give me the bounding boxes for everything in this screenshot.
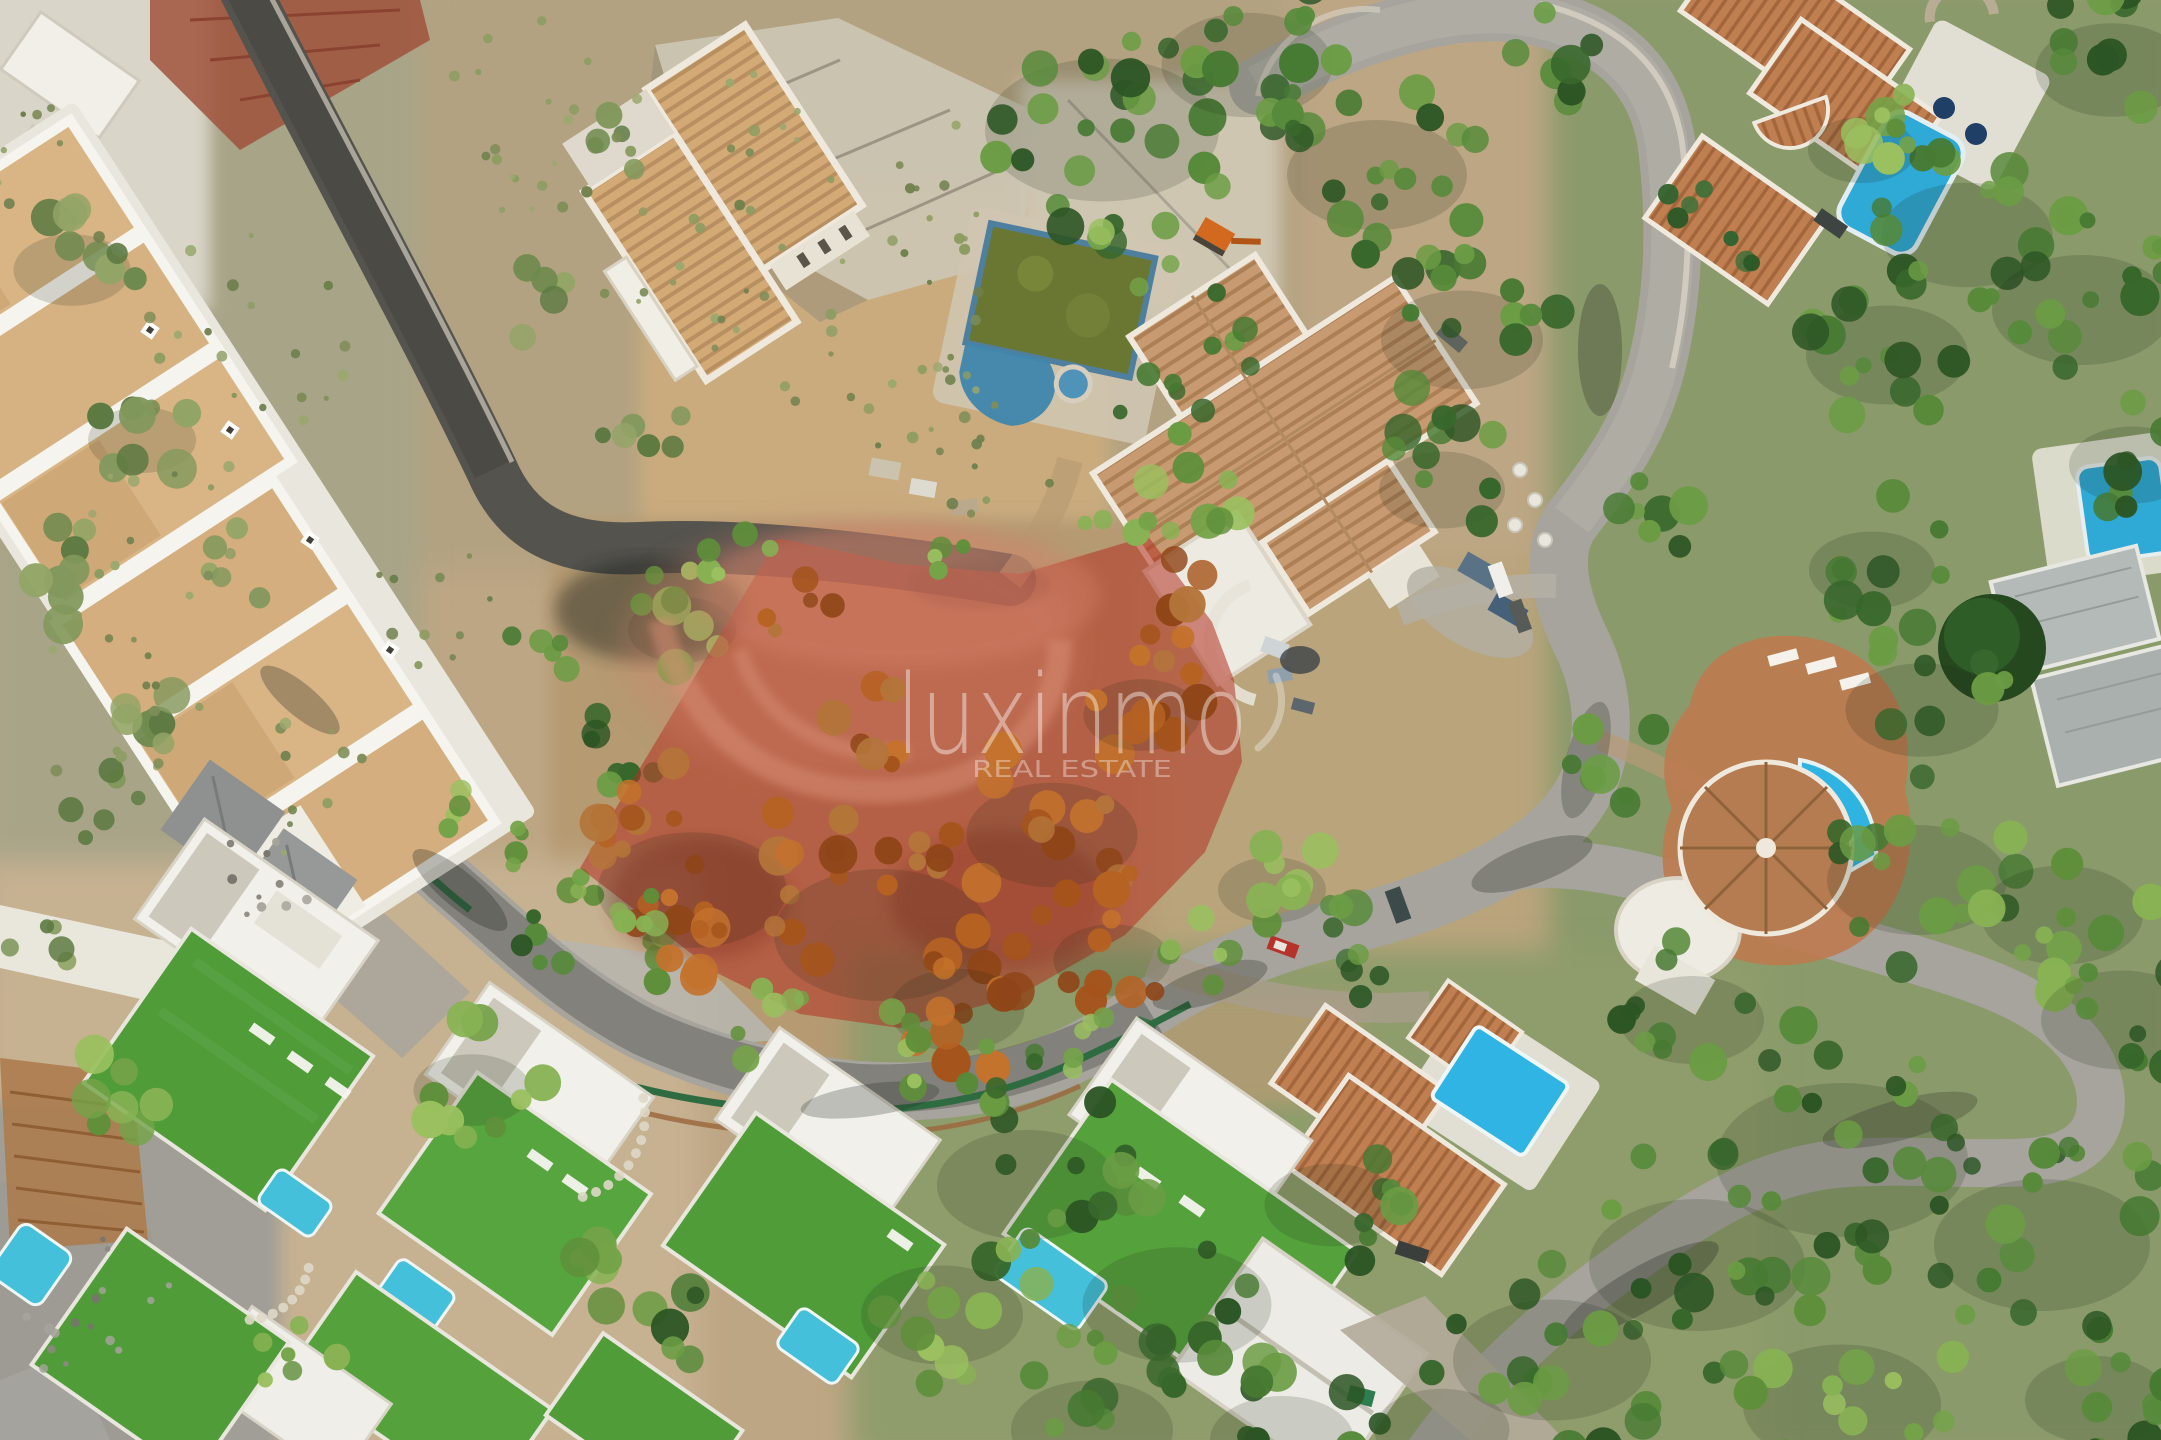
tree-blob [1164,374,1182,392]
tree-blob [1074,1022,1091,1039]
tree-blob [153,732,175,754]
tree-blob [929,427,934,432]
tree-blob [19,563,53,597]
tree-blob [2029,1137,2061,1169]
tree-blob [1544,1322,1568,1346]
tinted-tree-blob [926,997,955,1026]
tinted-tree-blob [803,593,818,608]
tree-blob [1723,231,1738,246]
tree-blob [661,1336,684,1359]
tree-blob [258,1372,273,1387]
tree-blob [166,1282,172,1288]
tree-blob [43,513,72,542]
tree-blob [1870,214,1902,246]
tree-blob [88,510,96,518]
tree-blob [643,888,659,904]
tree-blob [967,509,975,517]
tree-blob [390,575,399,584]
tree-blob [780,124,787,131]
tree-blob [1930,1196,1949,1215]
tree-blob [1329,1374,1365,1410]
tinted-tree-blob [933,957,955,979]
tree-blob [110,561,119,570]
tree-blob [1354,1213,1373,1232]
tree-blob [340,341,351,352]
tree-blob [965,1292,1002,1329]
tree-blob [49,936,75,962]
tree-blob [1382,437,1406,461]
tree-blob [1078,516,1093,531]
stepping-stone [640,1107,650,1117]
tree-blob [875,442,881,448]
tree-blob [1093,1007,1114,1028]
tree-blob [105,1246,111,1252]
tree-blob [1431,175,1453,197]
tree-blob [584,58,592,66]
tree-blob [203,571,213,581]
tree-blob [718,316,726,324]
tree-blob [636,299,641,304]
tree-blob [2082,1392,2112,1422]
tree-blob [676,262,685,271]
tree-blob [411,1101,448,1138]
tree-blob [1873,852,1891,870]
tree-blob [144,312,156,324]
tree-blob [927,280,932,285]
tree-blob [1197,1340,1233,1376]
tree-blob [1110,118,1135,143]
tree-blob [249,587,270,608]
tree-blob [1910,764,1935,789]
tree-blob [1509,1278,1540,1309]
stepping-stone [578,1192,588,1202]
tree-blob [1849,917,1869,937]
tree-blob [44,1324,55,1335]
tree-blob [281,901,291,911]
tinted-tree-blob [711,922,727,938]
tree-blob [117,444,149,476]
tree-blob [1137,362,1161,386]
tree-blob [128,475,140,487]
tree-blob [1834,1120,1863,1149]
tinted-tree-blob [926,844,954,872]
tree-blob [1241,1365,1274,1398]
tree-blob [2123,1142,2153,1172]
tree-blob [1631,1144,1657,1170]
tree-blob [1162,255,1180,273]
tree-blob [145,652,152,659]
tree-blob [2035,926,2052,943]
tree-blob [53,197,88,232]
tree-blob [485,1117,506,1138]
tree-blob [1160,940,1181,961]
tree-blob [1720,1350,1749,1379]
tree-blob [204,328,212,336]
tree-blob [1349,985,1372,1008]
tree-blob [1601,1199,1621,1219]
tree-blob [1932,566,1950,584]
tree-blob [552,635,569,652]
tree-blob [1454,244,1474,264]
tree-blob [1893,84,1915,106]
tree-blob [612,423,637,448]
tree-blob [933,362,943,372]
tree-blob [1995,671,2013,689]
tree-blob [1839,1349,1875,1385]
tree-blob [47,104,55,112]
tree-blob [689,214,700,225]
tree-blob [624,159,645,180]
tree-blob [1758,1049,1781,1072]
tree-blob [1500,278,1524,302]
tree-blob [1885,1372,1902,1389]
tree-blob [1415,470,1433,488]
tree-blob [1215,1298,1242,1325]
tree-blob [546,99,552,105]
tree-blob [537,16,546,25]
tree-blob [918,365,927,374]
tree-blob [186,592,194,600]
tree-blob [828,351,833,356]
tree-blob [1581,755,1620,794]
tree-blob [1078,49,1104,75]
tree-blob [1145,124,1180,159]
tinted-tree-blob [1169,586,1206,623]
tree-blob [203,535,227,559]
tree-blob [986,1077,1008,1099]
tree-blob [1668,535,1691,558]
tree-blob [1419,1360,1444,1385]
tree-blob [227,874,237,884]
tree-blob [105,634,113,642]
tree-blob [1045,479,1054,488]
tree-blob [929,561,948,580]
tinted-tree-blob [792,566,818,592]
tree-blob [1822,1375,1843,1396]
tree-blob [1863,1256,1892,1285]
tree-blob [57,140,63,146]
tree-blob [982,496,990,504]
tree-blob [695,223,705,233]
tree-blob [2120,277,2159,316]
tree-blob [1855,1219,1889,1253]
tree-blob [1876,479,1910,513]
tree-blob [376,572,382,578]
tree-blob [1884,342,1921,379]
tree-blob [600,289,610,299]
tree-blob [211,567,231,587]
tree-blob [2076,997,2098,1019]
tree-blob [51,765,63,777]
tree-blob [640,288,649,297]
tree-blob [636,915,653,932]
tree-blob [2082,291,2099,308]
tree-blob [324,1344,351,1371]
tree-blob [1232,317,1258,343]
tree-blob [639,207,648,216]
tree-blob [956,1072,978,1094]
tree-blob [744,288,749,293]
tree-blob [131,637,137,643]
tree-blob [357,754,367,764]
tree-blob [1930,520,1948,538]
tree-blob [936,448,944,456]
tree-blob [1689,1043,1727,1081]
tree-blob [731,1026,746,1041]
tree-blob [414,661,422,669]
tree-blob [506,857,521,872]
tree-blob [1625,1403,1662,1440]
stepping-stone [591,1187,601,1197]
tree-blob [22,1313,30,1321]
tree-blob [1941,818,1960,837]
tree-blob [1603,493,1635,525]
tree-blob [4,198,15,209]
tree-blob [32,110,42,120]
tree-blob [105,1336,115,1346]
tree-blob [732,521,758,547]
tree-blob [905,183,915,193]
tree-blob [1111,58,1150,97]
tree-blob [976,435,984,443]
tree-blob [1139,1323,1177,1361]
tree-blob [1610,787,1641,818]
tree-blob [173,399,202,428]
tree-blob [1926,138,1956,168]
tree-blob [337,370,348,381]
tree-blob [896,161,904,169]
tree-blob [972,386,980,394]
tree-blob [671,406,690,425]
tree-blob [540,286,568,314]
tree-blob [746,206,755,215]
tree-blob [916,1370,943,1397]
tree-blob [1814,1232,1841,1259]
tree-blob [435,573,445,583]
tree-blob [2080,212,2096,228]
tree-blob [1088,219,1115,246]
tree-blob [1937,1341,1969,1373]
tree-blob [1168,422,1192,446]
tree-blob [338,747,350,759]
tree-blob [847,393,855,401]
tree-blob [1064,155,1095,186]
tree-blob [569,104,579,114]
tree-blob [972,463,978,469]
tree-blob [954,233,965,244]
tree-blob [581,186,592,197]
tree-blob [259,404,266,411]
tree-blob [483,34,493,44]
tree-blob [2129,1025,2146,1042]
tree-blob [2010,1299,2037,1326]
tree-blob [509,324,536,351]
tree-shadow [1934,1179,2150,1311]
tree-blob [1048,1209,1067,1228]
tree-blob [92,1294,101,1303]
tree-blob [781,988,804,1011]
tree-blob [47,1345,55,1353]
tinted-tree-blob [1102,910,1121,929]
tree-blob [1302,832,1339,869]
tree-blob [552,161,557,166]
tree-blob [1630,472,1648,490]
tree-blob [450,654,456,660]
tree-blob [1914,655,1936,677]
tree-blob [2088,915,2124,951]
tree-blob [1674,1273,1714,1313]
stepping-stone [631,1148,641,1158]
tinted-tree-blob [1093,871,1131,909]
tree-blob [71,1318,80,1327]
stepping-stone [624,1160,634,1170]
tree-blob [75,1035,114,1074]
tree-blob [733,326,740,333]
tree-blob [1122,32,1141,51]
tinted-tree-blob [800,942,835,977]
tree-blob [78,830,93,845]
tree-blob [72,611,82,621]
tinted-tree-blob [657,747,689,779]
tree-blob [1093,510,1112,529]
tree-blob [142,682,150,690]
stepping-stone [304,1263,314,1273]
tree-blob [449,71,460,82]
tree-blob [927,1286,960,1319]
tree-blob [596,102,623,129]
tree-blob [974,287,984,297]
tree-blob [1502,39,1530,67]
tinted-tree-blob [816,700,852,736]
tree-blob [734,200,745,211]
tinted-tree-blob [939,822,965,848]
tree-blob [227,279,239,291]
stepping-stone [287,1295,297,1305]
tree-blob [970,315,981,326]
tree-blob [826,325,838,337]
tree-blob [551,951,575,975]
tree-blob [1321,44,1352,75]
tree-blob [1336,90,1363,117]
tree-blob [1551,45,1591,85]
tree-blob [1734,992,1756,1014]
tinted-tree-blob [877,875,898,896]
tree-blob [2124,91,2157,124]
tree-blob [1173,452,1205,484]
tree-blob [917,1271,935,1289]
tree-blob [72,1079,112,1119]
stepping-stone [300,1275,310,1285]
tree-blob [1371,193,1388,210]
tree-blob [2115,496,2137,518]
tree-blob [1994,176,2024,206]
tree-blob [582,720,611,749]
tree-blob [1068,1390,1105,1427]
tree-blob [1394,168,1416,190]
tree-blob [711,567,725,581]
tree-blob [907,1074,922,1089]
tree-blob [1499,323,1532,356]
tree-blob [588,1287,625,1324]
tree-blob [687,1287,704,1304]
tinted-tree-blob [776,840,804,868]
tree-blob [324,396,329,401]
tree-blob [778,244,786,252]
tree-blob [386,628,398,640]
tree-blob [147,1297,154,1304]
tree-blob [280,718,292,730]
tree-blob [127,537,135,545]
tree-blob [1794,1294,1826,1326]
tree-blob [115,1347,122,1354]
tree-blob [1695,180,1713,198]
tree-blob [1161,1373,1186,1398]
tree-blob [711,345,718,352]
tree-blob [1392,257,1425,290]
tree-blob [1094,1341,1118,1365]
tree-blob [467,553,473,559]
tinted-tree-blob [987,977,1021,1011]
tinted-tree-blob [1115,976,1147,1008]
tree-blob [1250,830,1283,863]
tree-blob [726,79,735,88]
tree-blob [1884,815,1916,847]
tree-blob [1128,1179,1166,1217]
tree-blob [1191,399,1215,423]
tree-blob [1840,825,1876,861]
tree-blob [1908,261,1928,281]
tree-blob [49,645,57,653]
tree-blob [697,538,721,562]
tree-blob [244,912,250,918]
watermark-tagline: REAL ESTATE [972,757,1172,783]
tinted-tree-blob [819,835,858,874]
tree-blob [257,902,267,912]
tree-blob [1668,1253,1691,1276]
tree-blob [107,243,128,264]
tree-blob [272,838,280,846]
tree-blob [2111,1352,2131,1372]
tree-blob [1207,283,1226,302]
tree-blob [1538,1250,1566,1278]
tinted-tree-blob [1053,880,1081,908]
tree-blob [1078,119,1095,136]
tree-blob [291,349,300,358]
tree-blob [2050,48,2077,75]
tree-blob [1380,1187,1418,1225]
tree-blob [1067,1157,1084,1174]
tree-blob [1285,120,1302,137]
tree-blob [1,939,19,957]
tree-blob [1779,1006,1817,1044]
tree-blob [1223,6,1243,26]
tree-blob [1928,1263,1954,1289]
tree-blob [926,215,932,221]
tree-blob [1088,1191,1117,1220]
tree-blob [587,137,604,154]
tree-blob [780,381,790,391]
tree-blob [1020,1361,1048,1389]
tree-blob [1540,294,1574,328]
tree-blob [93,809,114,830]
tree-blob [980,141,1013,174]
tree-blob [1977,1268,2002,1293]
tree-blob [557,202,568,213]
tree-blob [2056,206,2079,229]
tree-blob [1875,708,1907,740]
tree-blob [1743,255,1760,272]
tinted-tree-blob [1002,932,1030,960]
